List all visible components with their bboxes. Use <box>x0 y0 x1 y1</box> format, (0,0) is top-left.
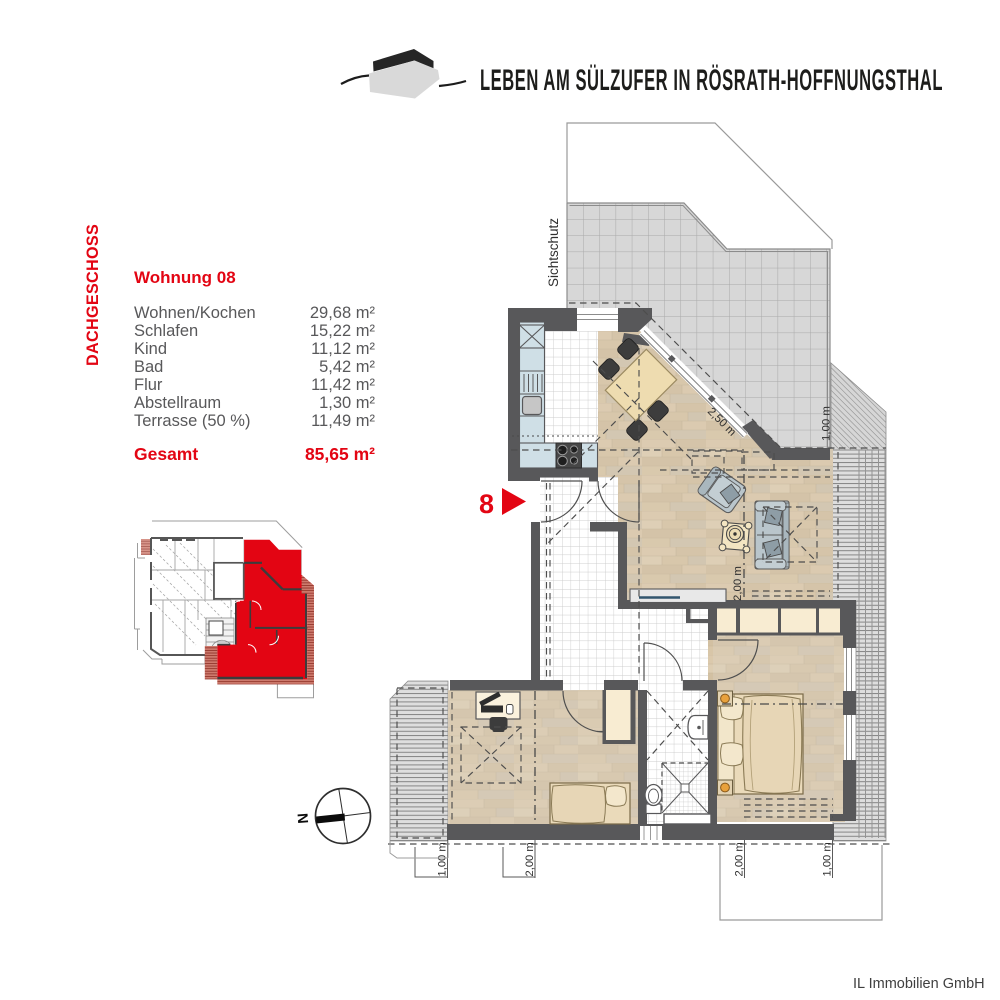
svg-text:DACHGESCHOSS: DACHGESCHOSS <box>84 224 102 366</box>
svg-text:1,30 m²: 1,30 m² <box>319 394 375 412</box>
svg-text:2,00 m: 2,00 m <box>734 842 746 876</box>
svg-text:1,00 m: 1,00 m <box>822 842 834 876</box>
svg-text:LEBEN AM SÜLZUFER IN RÖSRATH-H: LEBEN AM SÜLZUFER IN RÖSRATH-HOFFNUNGSTH… <box>480 64 943 97</box>
svg-text:N: N <box>294 813 311 825</box>
svg-text:IL Immobilien GmbH: IL Immobilien GmbH <box>853 976 985 992</box>
svg-text:8: 8 <box>479 489 494 519</box>
svg-text:Wohnen/Kochen: Wohnen/Kochen <box>134 304 256 322</box>
svg-text:2,00 m: 2,00 m <box>524 842 536 876</box>
svg-text:Abstellraum: Abstellraum <box>134 394 221 412</box>
svg-text:15,22 m²: 15,22 m² <box>310 322 376 340</box>
svg-text:85,65 m²: 85,65 m² <box>305 444 375 464</box>
svg-text:Gesamt: Gesamt <box>134 444 198 464</box>
svg-text:11,49 m²: 11,49 m² <box>311 412 375 430</box>
svg-text:29,68 m²: 29,68 m² <box>310 304 376 322</box>
svg-text:Kind: Kind <box>134 340 167 358</box>
svg-text:1,00 m: 1,00 m <box>821 406 833 441</box>
svg-text:11,12 m²: 11,12 m² <box>311 340 375 358</box>
svg-text:Sichtschutz: Sichtschutz <box>546 218 561 287</box>
svg-text:11,42 m²: 11,42 m² <box>311 376 375 394</box>
svg-text:Schlafen: Schlafen <box>134 322 198 340</box>
svg-text:2,00 m: 2,00 m <box>732 566 744 601</box>
svg-text:Bad: Bad <box>134 358 163 376</box>
svg-text:Flur: Flur <box>134 376 163 394</box>
svg-text:1,00 m: 1,00 m <box>437 842 449 876</box>
svg-text:Wohnung 08: Wohnung 08 <box>134 268 236 287</box>
svg-text:5,42 m²: 5,42 m² <box>319 358 375 376</box>
svg-text:Terrasse (50 %): Terrasse (50 %) <box>134 412 250 430</box>
